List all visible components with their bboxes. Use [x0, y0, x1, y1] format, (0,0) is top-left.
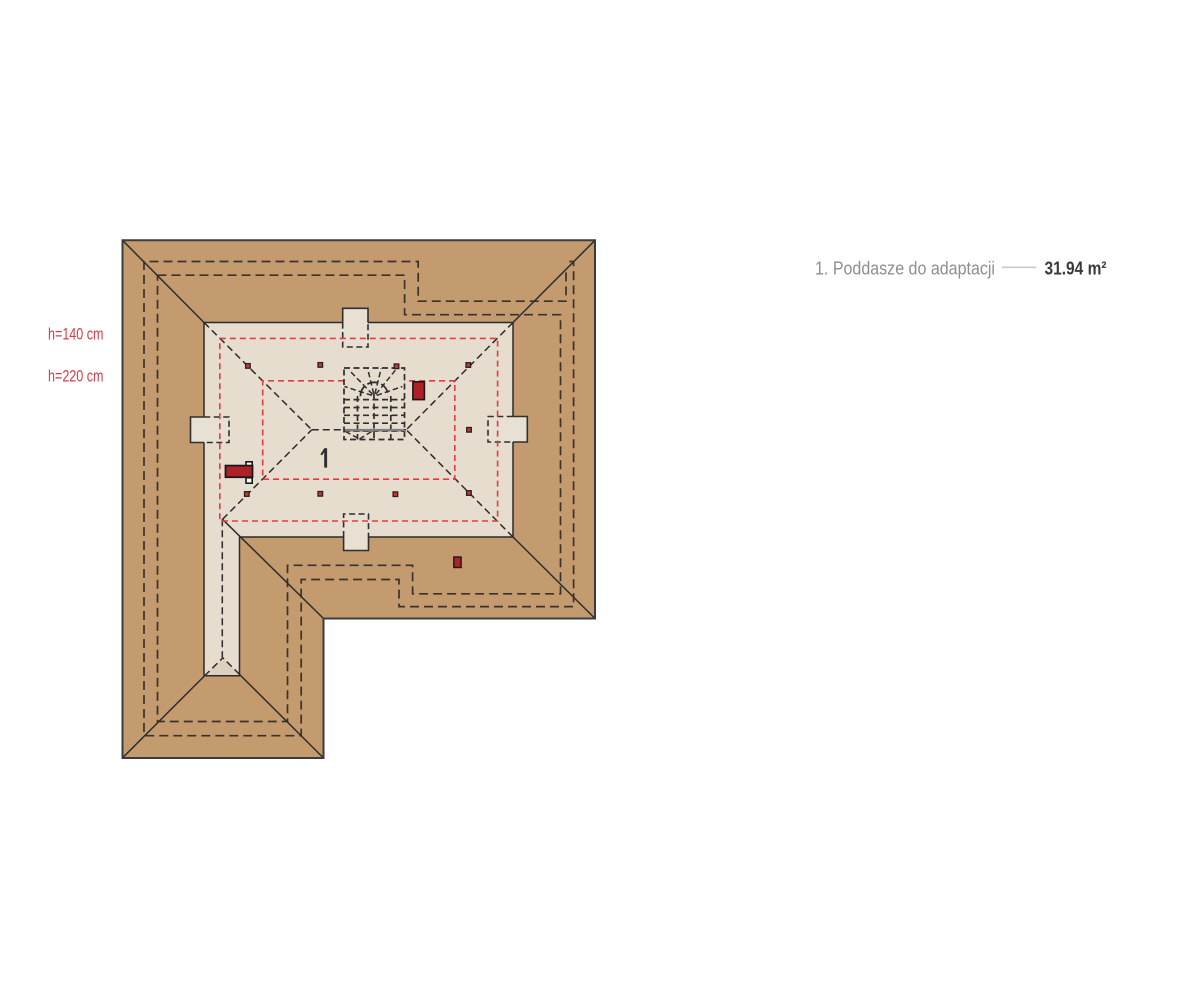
svg-text:h=140 cm: h=140 cm — [48, 326, 104, 344]
svg-text:31.94 m²: 31.94 m² — [1045, 257, 1107, 278]
svg-text:1. Poddasze do adaptacji: 1. Poddasze do adaptacji — [815, 257, 995, 278]
svg-text:h=220 cm: h=220 cm — [48, 367, 104, 385]
